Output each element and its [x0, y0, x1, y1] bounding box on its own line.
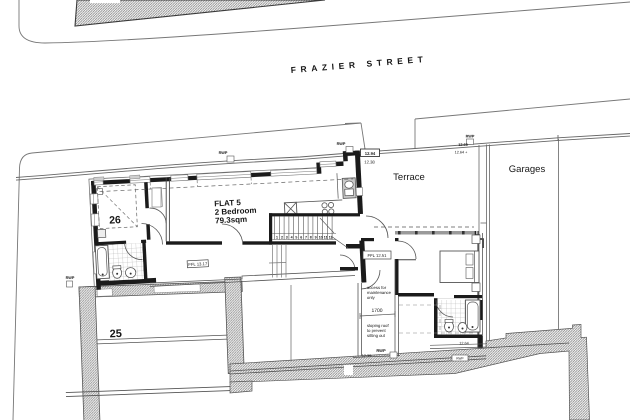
svg-text:79.3sqm: 79.3sqm	[215, 215, 247, 226]
svg-text:12.64 +: 12.64 +	[455, 151, 469, 155]
svg-text:RWP: RWP	[376, 348, 386, 353]
svg-text:7: 7	[305, 235, 307, 239]
svg-text:FFL 13.17: FFL 13.17	[188, 261, 208, 267]
svg-text:Terrace: Terrace	[393, 172, 425, 183]
svg-text:9: 9	[315, 235, 317, 239]
svg-text:25: 25	[109, 328, 122, 340]
svg-text:12: 12	[329, 235, 333, 239]
svg-text:RWP: RWP	[466, 135, 475, 139]
svg-text:12.69: 12.69	[458, 143, 468, 147]
svg-text:12.94: 12.94	[365, 151, 376, 156]
svg-text:RWP: RWP	[219, 151, 228, 155]
svg-text:RWP: RWP	[66, 276, 75, 280]
svg-text:FFL 12.51: FFL 12.51	[368, 253, 388, 258]
svg-text:26: 26	[109, 214, 121, 227]
svg-text:only: only	[367, 295, 376, 300]
svg-text:12.39: 12.39	[362, 354, 372, 358]
svg-text:Garages: Garages	[509, 164, 546, 175]
svg-text:8: 8	[310, 235, 312, 239]
svg-text:4: 4	[291, 235, 293, 239]
svg-text:12.38: 12.38	[364, 160, 375, 165]
svg-text:10: 10	[319, 235, 323, 239]
svg-text:3: 3	[286, 235, 288, 239]
svg-text:5: 5	[295, 235, 297, 239]
svg-text:sitting out: sitting out	[367, 333, 386, 338]
svg-text:6: 6	[300, 235, 302, 239]
svg-text:12.64: 12.64	[459, 342, 469, 346]
svg-text:1: 1	[276, 235, 278, 239]
svg-text:2: 2	[281, 235, 283, 239]
svg-text:11: 11	[324, 235, 328, 239]
svg-text:RWP: RWP	[456, 357, 463, 361]
svg-text:RWP: RWP	[337, 142, 346, 146]
svg-text:1700: 1700	[371, 308, 382, 314]
